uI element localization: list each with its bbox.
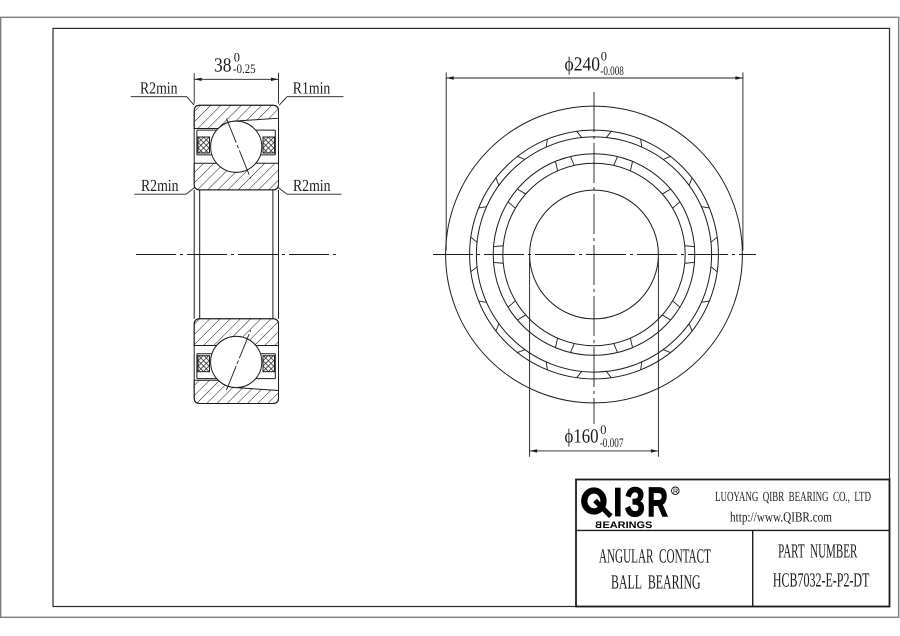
svg-text:BALL BEARING: BALL BEARING [611,571,701,593]
svg-text:R2min: R2min [293,176,331,195]
svg-text:http://www.QIBR.com: http://www.QIBR.com [730,511,832,526]
svg-text:38: 38 [214,54,232,76]
svg-text:-0.25: -0.25 [233,61,256,76]
svg-text:R1min: R1min [293,79,331,98]
svg-text:-0.008: -0.008 [600,63,624,78]
svg-text:-0.007: -0.007 [600,435,624,450]
svg-text:R2min: R2min [141,176,179,195]
svg-text:ANGULAR CONTACT: ANGULAR CONTACT [599,546,711,568]
svg-text:R2min: R2min [140,79,178,98]
svg-text:ϕ160: ϕ160 [565,426,599,448]
svg-text:R: R [647,479,668,525]
svg-text:R: R [673,488,678,495]
svg-text:HCB7032-E-P2-DT: HCB7032-E-P2-DT [773,570,870,592]
svg-text:З: З [625,479,645,525]
svg-text:ϕ240: ϕ240 [565,53,601,75]
svg-text:EARINGS: EARINGS [603,520,653,531]
svg-text:PART NUMBER: PART NUMBER [778,540,858,562]
svg-text:B: B [595,520,602,531]
svg-text:0: 0 [601,49,607,64]
svg-text:LUOYANG QIBR BEARING CO.,: LUOYANG QIBR BEARING CO., LTD [715,490,871,505]
